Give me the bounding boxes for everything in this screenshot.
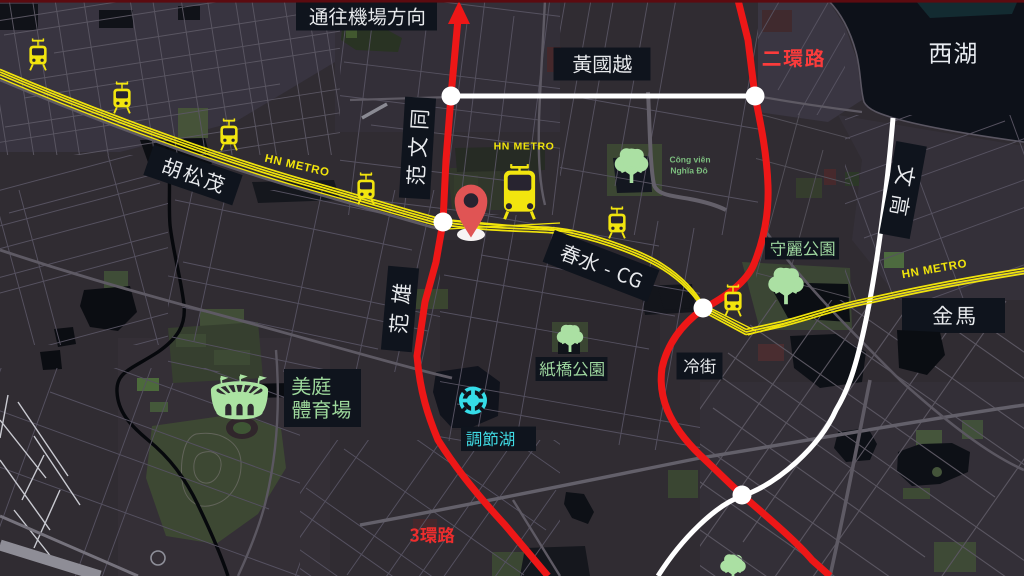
svg-text:Nghĩa Đô: Nghĩa Đô: [670, 166, 707, 176]
svg-text:Công viên: Công viên: [669, 155, 710, 165]
svg-text:HN METRO: HN METRO: [494, 140, 555, 152]
